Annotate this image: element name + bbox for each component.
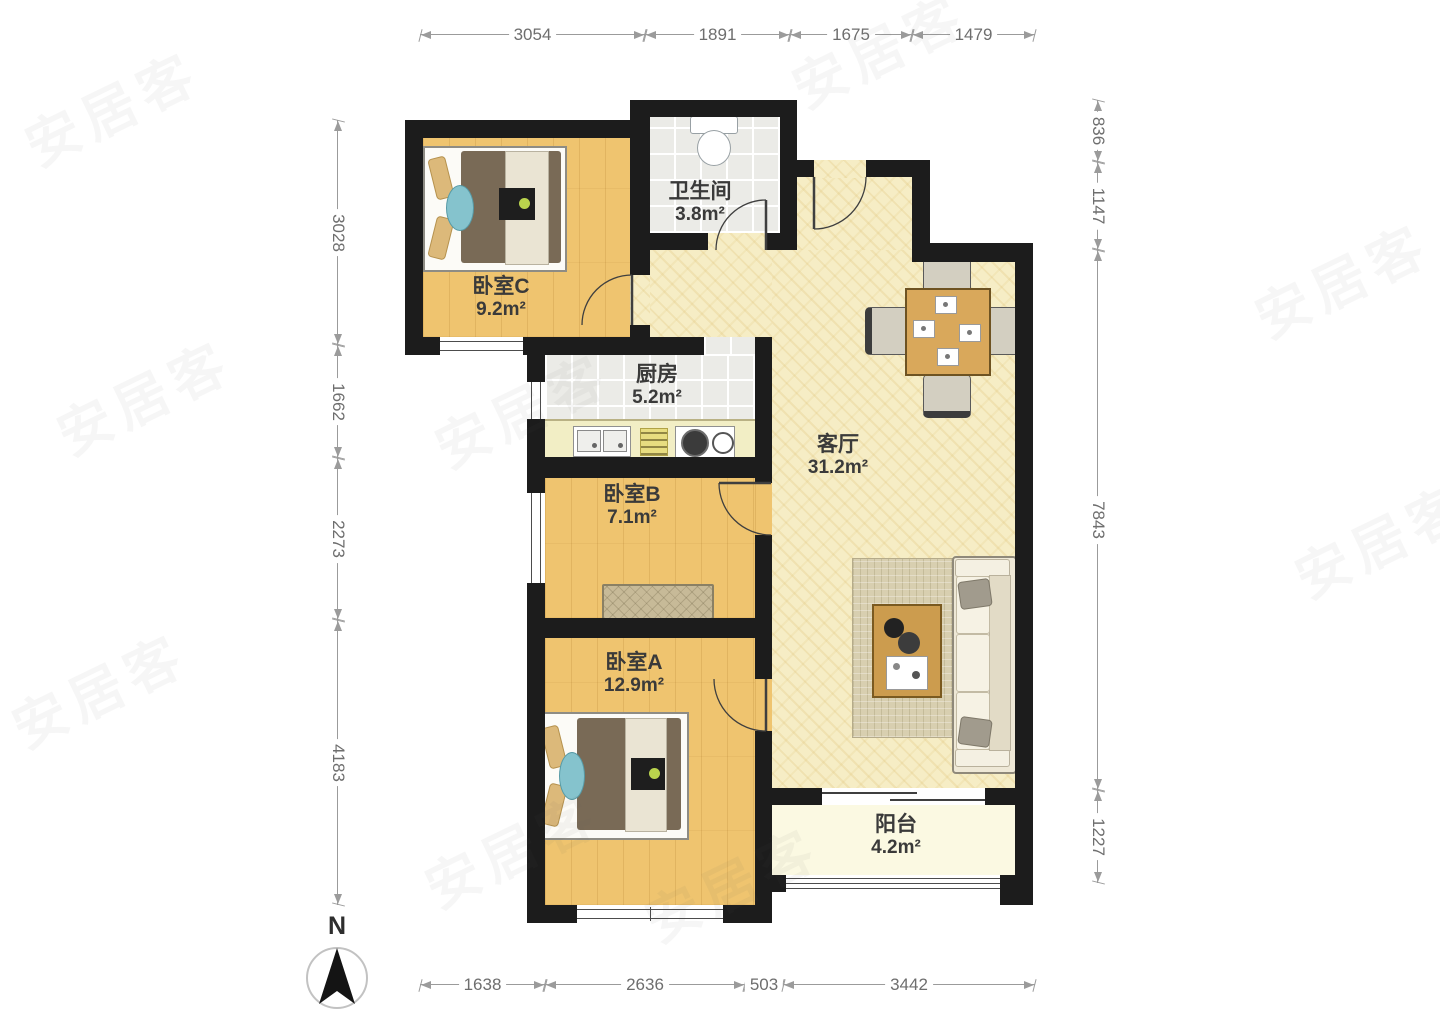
dimension-right: 7843 xyxy=(1097,250,1098,790)
room-label-bedroom-b: 卧室B 7.1m² xyxy=(603,482,660,530)
dimension-value: 3442 xyxy=(885,975,933,995)
dimension-value: 1891 xyxy=(694,25,742,45)
room-label-bedroom-c: 卧室C 9.2m² xyxy=(472,274,529,322)
room-label-living-room: 客厅 31.2m² xyxy=(808,432,868,480)
dimension-value: 1638 xyxy=(459,975,507,995)
dimension-left: 3028 xyxy=(337,120,338,345)
room-name: 卧室B xyxy=(603,482,660,507)
room-area: 7.1m² xyxy=(603,507,660,530)
room-name: 阳台 xyxy=(871,812,921,837)
room-area: 4.2m² xyxy=(871,837,921,860)
dimension-right: 836 xyxy=(1097,100,1098,162)
room-name: 卫生间 xyxy=(669,179,732,204)
dimension-value: 1147 xyxy=(1088,183,1108,230)
north-label: N xyxy=(302,912,372,941)
dimension-top: 3054 xyxy=(420,34,645,35)
dimension-right: 1227 xyxy=(1097,790,1098,883)
dimension-value: 2636 xyxy=(621,975,669,995)
dimension-bottom: 3442 xyxy=(783,984,1035,985)
dimension-value: 1227 xyxy=(1088,813,1108,861)
dimension-top: 1479 xyxy=(912,34,1035,35)
door-arc xyxy=(582,275,632,325)
dimension-value: 3028 xyxy=(328,209,348,257)
room-label-balcony: 阳台 4.2m² xyxy=(871,812,921,860)
room-label-bathroom: 卫生间 3.8m² xyxy=(669,179,732,227)
room-area: 12.9m² xyxy=(604,675,664,698)
room-area: 31.2m² xyxy=(808,457,868,480)
door-arc xyxy=(714,679,766,731)
dimension-left: 2273 xyxy=(337,458,338,620)
dimension-value: 3054 xyxy=(509,25,557,45)
dimension-value: 1675 xyxy=(827,25,875,45)
compass: N xyxy=(302,912,372,1018)
dimension-top: 1891 xyxy=(645,34,790,35)
dimension-value: 836 xyxy=(1088,112,1108,150)
dimension-value: 1662 xyxy=(328,378,348,426)
dimension-value: 1479 xyxy=(950,25,998,45)
dimension-value: 4183 xyxy=(328,739,348,787)
door-arc xyxy=(814,177,866,229)
dimension-value: 2273 xyxy=(328,515,348,563)
dimension-top: 1675 xyxy=(790,34,912,35)
room-name: 卧室A xyxy=(604,650,664,675)
door-arcs xyxy=(0,0,1440,1024)
room-name: 卧室C xyxy=(472,274,529,299)
room-label-kitchen: 厨房 5.2m² xyxy=(632,362,682,410)
room-name: 厨房 xyxy=(632,362,682,387)
north-arrow-icon xyxy=(302,943,372,1013)
room-area: 3.8m² xyxy=(669,204,732,227)
room-area: 9.2m² xyxy=(472,299,529,322)
room-label-bedroom-a: 卧室A 12.9m² xyxy=(604,650,664,698)
floor-plan-canvas: 卧室C 9.2m² 卫生间 3.8m² 厨房 5.2m² 客厅 31.2m² 卧… xyxy=(0,0,1440,1024)
dimension-value: 7843 xyxy=(1088,496,1108,544)
dimension-value: 503 xyxy=(745,975,783,995)
room-name: 客厅 xyxy=(808,432,868,457)
dimension-bottom: 2636 xyxy=(545,984,745,985)
dimension-left: 4183 xyxy=(337,620,338,905)
room-area: 5.2m² xyxy=(632,387,682,410)
dimension-left: 1662 xyxy=(337,345,338,458)
dimension-bottom: 1638 xyxy=(420,984,545,985)
door-arc xyxy=(719,483,771,535)
dimension-bottom: 503 xyxy=(745,984,783,985)
dimension-right: 1147 xyxy=(1097,162,1098,250)
